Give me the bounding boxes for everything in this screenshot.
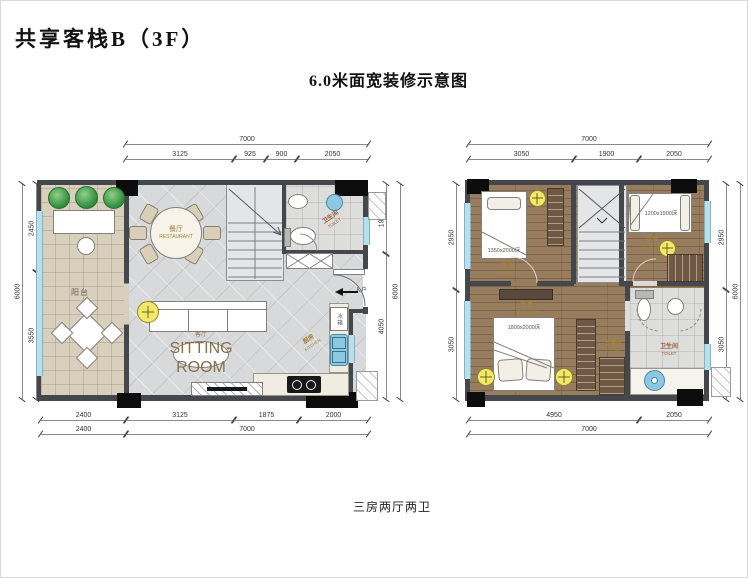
entry-door-swing [334, 275, 365, 306]
stairs-left-lines [228, 187, 282, 279]
plan-linework [1, 1, 748, 578]
balcony-door-jambs [124, 283, 129, 325]
door-swing [633, 259, 656, 282]
stairs-right-lines [579, 189, 625, 277]
door-swing [511, 257, 537, 283]
light-compass-lines [142, 193, 673, 383]
bed-fold-lines [482, 194, 653, 368]
shower-arcs [637, 309, 701, 331]
floorplan-sheet: 共享客栈B（3F） 6.0米面宽装修示意图 三房两厅两卫 7000 3125 9… [0, 0, 748, 578]
cabinet-x-lines [287, 254, 332, 268]
door-swing [300, 234, 317, 251]
